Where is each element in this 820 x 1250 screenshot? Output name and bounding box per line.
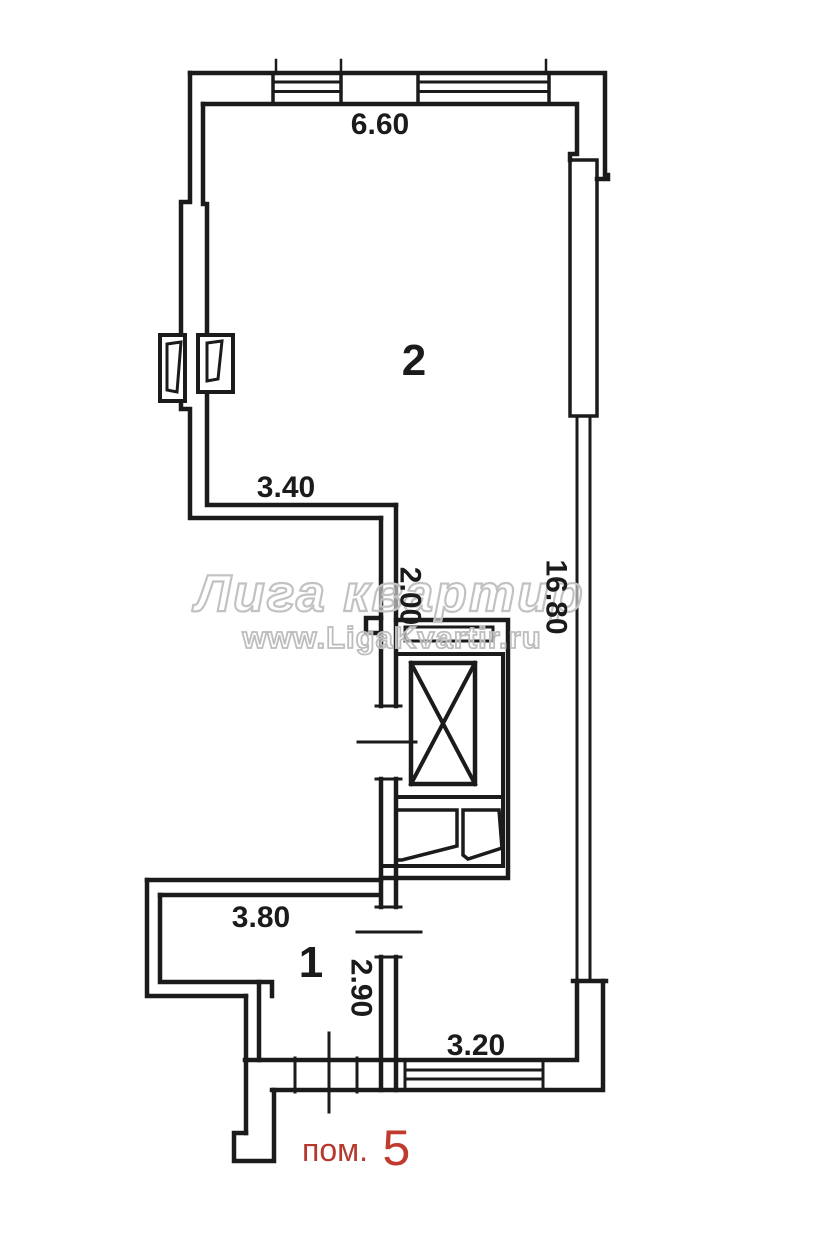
watermark-title: Лига квартир xyxy=(191,565,584,623)
shaft-inner xyxy=(381,654,503,866)
left-window-unit xyxy=(160,335,233,401)
watermark-url: www.LigaKvartir.ru xyxy=(241,620,541,655)
dimension-room1-depth: 2.90 xyxy=(345,959,378,1017)
bottom-wall-jambs xyxy=(295,1058,357,1092)
left-window-sash-icon xyxy=(167,342,181,392)
apartment-number-value: 5 xyxy=(382,1120,410,1176)
top-window-dividers xyxy=(273,73,549,104)
elevator-shaft xyxy=(381,620,508,878)
dimension-corridor-width: 2.00 xyxy=(394,567,427,625)
wall-right-outer-lower xyxy=(272,981,603,1090)
right-wall-thin-lines xyxy=(577,416,590,981)
dimension-room2-left-width: 3.40 xyxy=(257,471,315,504)
top-window-glazing xyxy=(273,82,549,92)
bottom-window xyxy=(405,1060,543,1090)
room1-label: 1 xyxy=(299,938,323,987)
room2-label: 2 xyxy=(402,336,426,385)
wall-left-inner-upper xyxy=(203,104,207,333)
elevator-x-icon xyxy=(411,663,475,784)
vent-duct-right-icon xyxy=(463,810,502,859)
left-window-sash2-icon xyxy=(207,341,222,381)
shaft-outer xyxy=(381,620,508,878)
dimension-top-width: 6.60 xyxy=(351,108,409,141)
floor-plan-canvas: Лига квартир www.LigaKvartir.ru 6.60 3.4… xyxy=(0,0,820,1250)
apartment-number-prefix: пом. xyxy=(302,1132,368,1168)
vent-duct-left-icon xyxy=(396,810,457,860)
room-labels: 2 1 xyxy=(299,336,426,987)
wall-right-inner-lower xyxy=(245,981,577,1060)
floor-plan-page: Лига квартир www.LigaKvartir.ru 6.60 3.4… xyxy=(0,0,820,1250)
step-wall xyxy=(234,1090,274,1161)
bottom-window-glazing xyxy=(405,1070,543,1079)
right-window-box xyxy=(570,160,597,416)
top-windows xyxy=(273,60,549,104)
dimension-right-height: 16.80 xyxy=(540,559,573,634)
watermark: Лига квартир www.LigaKvartir.ru xyxy=(191,565,584,655)
apartment-number-label: пом. 5 xyxy=(302,1120,410,1176)
dimension-room1-width: 3.80 xyxy=(232,901,290,934)
bottom-window-dividers xyxy=(405,1060,543,1090)
left-window-inner-box xyxy=(198,335,233,392)
dimension-bottom-window-width: 3.20 xyxy=(447,1029,505,1062)
opening-marks xyxy=(295,706,421,1112)
wall-left-outer-upper xyxy=(181,73,190,333)
